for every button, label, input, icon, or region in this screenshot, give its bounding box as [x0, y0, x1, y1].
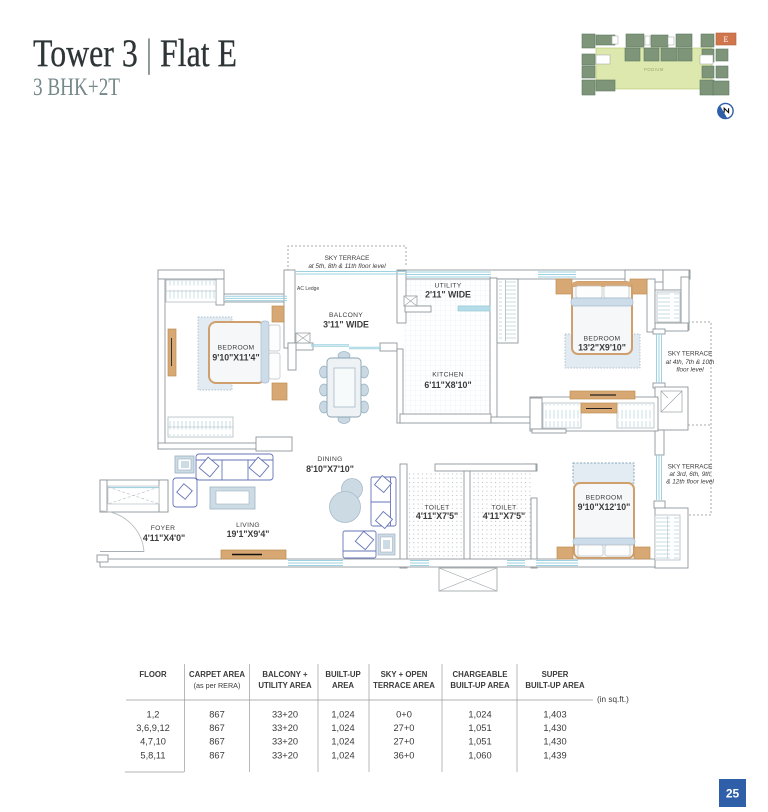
- svg-text:UTILITY: UTILITY: [435, 282, 462, 289]
- svg-text:33+20: 33+20: [272, 710, 298, 720]
- svg-text:SKY TERRACE: SKY TERRACE: [668, 350, 713, 357]
- svg-text:SKY + OPEN: SKY + OPEN: [381, 670, 428, 679]
- svg-text:3'11" WIDE: 3'11" WIDE: [323, 319, 369, 329]
- svg-text:1,024: 1,024: [331, 710, 354, 720]
- svg-text:1,024: 1,024: [331, 723, 354, 733]
- svg-text:CARPET AREA: CARPET AREA: [189, 670, 245, 679]
- svg-text:0+0: 0+0: [396, 710, 412, 720]
- svg-text:27+0: 27+0: [394, 737, 415, 747]
- svg-text:1,430: 1,430: [543, 737, 566, 747]
- svg-text:Tower 3 | Flat E: Tower 3 | Flat E: [33, 32, 237, 75]
- svg-text:2'11" WIDE: 2'11" WIDE: [425, 290, 471, 300]
- svg-text:867: 867: [209, 737, 225, 747]
- svg-text:867: 867: [209, 723, 225, 733]
- svg-text:LIVING: LIVING: [236, 522, 260, 529]
- svg-text:1,430: 1,430: [543, 723, 566, 733]
- svg-text:3 BHK+2T: 3 BHK+2T: [33, 74, 120, 101]
- svg-text:9'10"X11'4": 9'10"X11'4": [212, 353, 259, 363]
- svg-text:UTILITY AREA: UTILITY AREA: [258, 681, 312, 690]
- svg-text:BALCONY +: BALCONY +: [262, 670, 308, 679]
- svg-text:36+0: 36+0: [394, 750, 415, 760]
- svg-text:4'11"X7'5": 4'11"X7'5": [416, 511, 458, 521]
- svg-text:SKY TERRACE: SKY TERRACE: [668, 464, 713, 471]
- svg-text:867: 867: [209, 710, 225, 720]
- svg-text:867: 867: [209, 750, 225, 760]
- svg-text:1,024: 1,024: [331, 750, 354, 760]
- svg-text:1,403: 1,403: [543, 710, 566, 720]
- svg-text:BUILT-UP: BUILT-UP: [325, 670, 360, 679]
- svg-text:AC Ledge: AC Ledge: [297, 286, 319, 292]
- svg-text:at 3rd, 6th, 9th: at 3rd, 6th, 9th: [669, 471, 711, 478]
- svg-text:& 12th floor level: & 12th floor level: [666, 478, 714, 485]
- svg-text:1,051: 1,051: [468, 737, 491, 747]
- svg-text:33+20: 33+20: [272, 750, 298, 760]
- svg-text:(in sq.ft.): (in sq.ft.): [597, 695, 629, 704]
- svg-text:AREA: AREA: [332, 681, 354, 690]
- svg-text:BEDROOM: BEDROOM: [584, 336, 621, 343]
- svg-text:33+20: 33+20: [272, 737, 298, 747]
- svg-text:at 4th, 7th & 10th: at 4th, 7th & 10th: [666, 359, 715, 366]
- svg-text:25: 25: [726, 787, 740, 801]
- svg-text:6'11"X8'10": 6'11"X8'10": [424, 380, 471, 390]
- svg-text:4'11"X7'5": 4'11"X7'5": [483, 511, 525, 521]
- svg-text:1,439: 1,439: [543, 750, 566, 760]
- svg-text:27+0: 27+0: [394, 723, 415, 733]
- svg-text:4'11"X4'0": 4'11"X4'0": [143, 533, 185, 543]
- svg-text:DINING: DINING: [317, 456, 342, 463]
- svg-text:floor level: floor level: [676, 367, 704, 374]
- svg-text:(as per RERA): (as per RERA): [194, 681, 241, 690]
- svg-text:FLOOR: FLOOR: [139, 670, 167, 679]
- svg-text:9'10"X12'10": 9'10"X12'10": [578, 502, 631, 512]
- svg-text:13'2"X9'10": 13'2"X9'10": [578, 343, 626, 353]
- svg-text:TERRACE AREA: TERRACE AREA: [373, 681, 435, 690]
- svg-text:SKY TERRACE: SKY TERRACE: [325, 255, 370, 262]
- svg-text:BEDROOM: BEDROOM: [586, 494, 623, 501]
- svg-text:4,7,10: 4,7,10: [140, 737, 166, 747]
- svg-text:PODIUM: PODIUM: [644, 67, 664, 72]
- svg-text:1,024: 1,024: [331, 737, 354, 747]
- svg-text:1,051: 1,051: [468, 723, 491, 733]
- svg-text:5,8,11: 5,8,11: [140, 750, 165, 760]
- svg-text:1,024: 1,024: [468, 710, 491, 720]
- svg-text:1,060: 1,060: [468, 750, 491, 760]
- svg-text:SUPER: SUPER: [542, 670, 569, 679]
- svg-text:8'10"X7'10": 8'10"X7'10": [306, 464, 354, 474]
- svg-text:KITCHEN: KITCHEN: [432, 371, 463, 378]
- svg-text:E: E: [724, 35, 729, 44]
- svg-text:BUILT-UP AREA: BUILT-UP AREA: [450, 681, 510, 690]
- svg-text:33+20: 33+20: [272, 723, 298, 733]
- svg-text:at 5th, 8th & 11th floor level: at 5th, 8th & 11th floor level: [308, 263, 386, 270]
- svg-text:CHARGEABLE: CHARGEABLE: [452, 670, 507, 679]
- svg-text:FOYER: FOYER: [151, 525, 176, 532]
- svg-text:BUILT-UP AREA: BUILT-UP AREA: [525, 681, 585, 690]
- svg-text:BEDROOM: BEDROOM: [218, 345, 255, 352]
- svg-text:3,6,9,12: 3,6,9,12: [136, 723, 170, 733]
- svg-text:1,2: 1,2: [147, 710, 160, 720]
- svg-text:19'1"X9'4": 19'1"X9'4": [227, 529, 270, 539]
- svg-text:BALCONY: BALCONY: [329, 312, 363, 319]
